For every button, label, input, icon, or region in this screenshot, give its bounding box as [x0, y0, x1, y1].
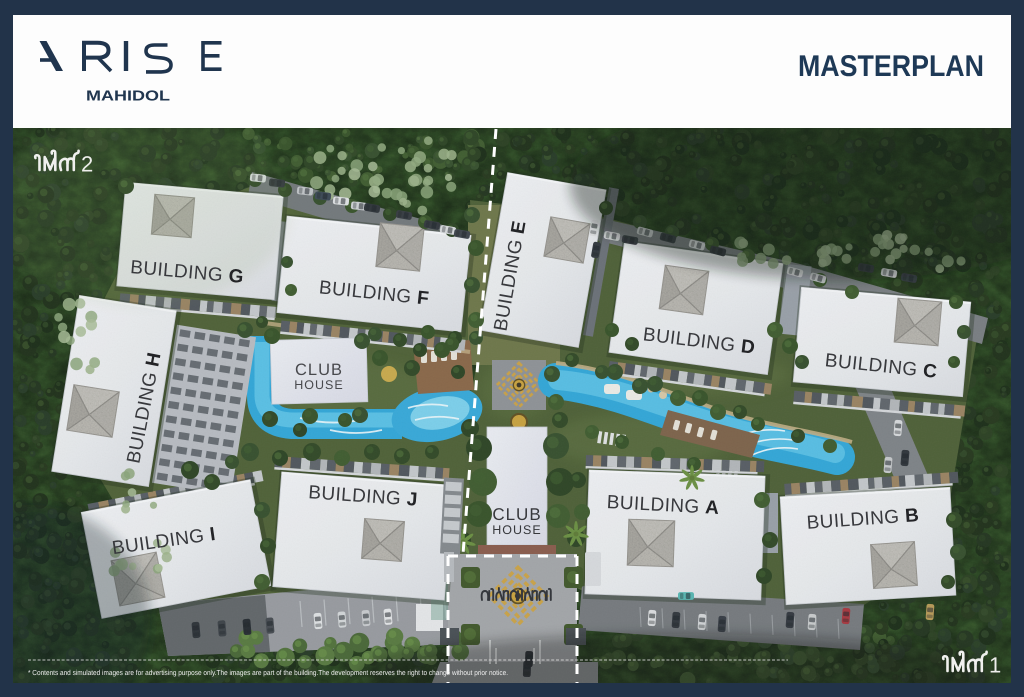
svg-text:MAHIDOL: MAHIDOL — [86, 89, 170, 105]
svg-text:CLUB: CLUB — [295, 361, 343, 379]
svg-text:HOUSE: HOUSE — [294, 378, 343, 392]
svg-text:2: 2 — [81, 152, 93, 177]
svg-text:HOUSE: HOUSE — [492, 523, 541, 537]
svg-text:CLUB: CLUB — [492, 505, 541, 524]
svg-text:1: 1 — [989, 653, 1001, 678]
svg-text:* Contents and simulated image: * Contents and simulated images are for … — [28, 668, 508, 677]
svg-text:MASTERPLAN: MASTERPLAN — [798, 50, 984, 83]
